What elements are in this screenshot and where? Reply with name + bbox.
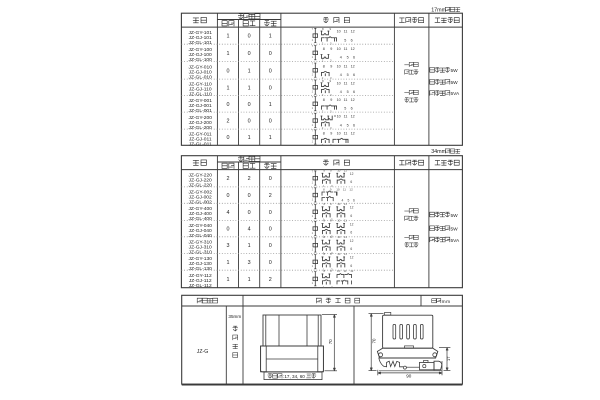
svg-text:12: 12 bbox=[350, 222, 354, 226]
svg-text:5: 5 bbox=[347, 123, 349, 127]
svg-text:3: 3 bbox=[330, 93, 332, 97]
svg-text:7: 7 bbox=[312, 62, 314, 66]
svg-text:1: 1 bbox=[269, 102, 272, 108]
svg-text:2: 2 bbox=[269, 277, 272, 283]
svg-text:1: 1 bbox=[227, 34, 230, 40]
svg-text:12: 12 bbox=[351, 115, 355, 119]
svg-text:5: 5 bbox=[347, 73, 349, 77]
svg-text:6: 6 bbox=[350, 247, 352, 251]
svg-text:11: 11 bbox=[343, 187, 346, 191]
svg-text:1: 1 bbox=[248, 135, 251, 141]
svg-text:JZ-GL-110: JZ-GL-110 bbox=[189, 92, 212, 98]
svg-text:0: 0 bbox=[269, 119, 272, 125]
svg-text:12: 12 bbox=[351, 98, 355, 102]
svg-text:0: 0 bbox=[227, 135, 230, 141]
svg-text:10: 10 bbox=[337, 269, 341, 273]
svg-text:3: 3 bbox=[248, 260, 251, 266]
svg-text:12: 12 bbox=[350, 206, 354, 210]
svg-text:6: 6 bbox=[350, 231, 352, 235]
svg-text:0: 0 bbox=[269, 260, 272, 266]
svg-text:6: 6 bbox=[351, 107, 353, 111]
svg-text:1: 1 bbox=[312, 90, 314, 94]
svg-text:1: 1 bbox=[312, 214, 314, 218]
svg-text:2: 2 bbox=[322, 59, 324, 63]
svg-text:11: 11 bbox=[344, 235, 347, 239]
svg-text:35mm: 35mm bbox=[228, 314, 241, 319]
svg-text:12: 12 bbox=[351, 47, 355, 51]
svg-text:1: 1 bbox=[248, 277, 251, 283]
svg-text:9: 9 bbox=[330, 98, 332, 102]
svg-text:9: 9 bbox=[330, 187, 332, 191]
svg-text:2: 2 bbox=[227, 176, 230, 182]
svg-text:9: 9 bbox=[330, 202, 332, 206]
svg-text:5: 5 bbox=[347, 56, 349, 60]
svg-text:2: 2 bbox=[322, 41, 324, 45]
svg-text:7: 7 bbox=[312, 270, 314, 274]
svg-text:JZ-GL-101: JZ-GL-101 bbox=[189, 40, 213, 46]
svg-text:8: 8 bbox=[323, 47, 325, 51]
svg-text:7: 7 bbox=[312, 79, 314, 83]
svg-text:11: 11 bbox=[344, 252, 347, 256]
svg-text:8: 8 bbox=[323, 131, 325, 135]
svg-text:3: 3 bbox=[330, 41, 332, 45]
svg-text:11: 11 bbox=[344, 219, 347, 223]
svg-text:1: 1 bbox=[227, 51, 230, 57]
svg-text:JZ-GL-220: JZ-GL-220 bbox=[189, 182, 213, 188]
svg-text:70: 70 bbox=[328, 339, 333, 344]
svg-text:7: 7 bbox=[312, 253, 314, 257]
svg-text:12: 12 bbox=[350, 239, 354, 243]
svg-text:9: 9 bbox=[330, 168, 332, 172]
svg-text:12: 12 bbox=[351, 81, 355, 85]
svg-text:12: 12 bbox=[350, 269, 354, 273]
svg-text:4: 4 bbox=[340, 90, 342, 94]
svg-text:0: 0 bbox=[248, 51, 251, 57]
svg-text:10: 10 bbox=[337, 202, 341, 206]
svg-text:1: 1 bbox=[248, 68, 251, 74]
svg-text:10: 10 bbox=[337, 131, 341, 135]
svg-text:12: 12 bbox=[350, 172, 354, 176]
svg-text:1: 1 bbox=[312, 38, 314, 42]
svg-text:6: 6 bbox=[353, 90, 355, 94]
svg-text:0: 0 bbox=[269, 176, 272, 182]
svg-text:0: 0 bbox=[248, 102, 251, 108]
svg-text:1: 1 bbox=[269, 34, 272, 40]
svg-text:11: 11 bbox=[344, 131, 348, 135]
svg-text:2: 2 bbox=[227, 119, 230, 125]
svg-text:11: 11 bbox=[344, 30, 348, 34]
svg-text:0: 0 bbox=[248, 119, 251, 125]
svg-text:12: 12 bbox=[350, 256, 354, 260]
svg-text:5VA: 5VA bbox=[451, 91, 461, 97]
svg-text:10: 10 bbox=[337, 30, 341, 34]
svg-text:11: 11 bbox=[344, 81, 348, 85]
svg-text:4: 4 bbox=[340, 123, 342, 127]
svg-text:90: 90 bbox=[406, 373, 412, 378]
svg-text:0: 0 bbox=[269, 51, 272, 57]
svg-text:0: 0 bbox=[269, 210, 272, 216]
svg-text:8: 8 bbox=[324, 168, 326, 172]
svg-text:0: 0 bbox=[227, 193, 230, 199]
svg-text:7: 7 bbox=[312, 236, 314, 240]
svg-text:11: 11 bbox=[344, 202, 347, 206]
svg-text:JZ-GL-002: JZ-GL-002 bbox=[189, 199, 213, 205]
svg-text:5: 5 bbox=[344, 38, 346, 42]
svg-text:0: 0 bbox=[269, 227, 272, 233]
svg-text:10: 10 bbox=[337, 219, 341, 223]
svg-text:1: 1 bbox=[269, 135, 272, 141]
svg-text:JZ-GL-011: JZ-GL-011 bbox=[189, 141, 212, 147]
svg-text:6: 6 bbox=[353, 198, 355, 202]
svg-text:12: 12 bbox=[351, 30, 355, 34]
svg-text:8: 8 bbox=[322, 79, 324, 83]
svg-text:0: 0 bbox=[269, 68, 272, 74]
svg-text:5VA: 5VA bbox=[451, 238, 461, 244]
svg-text:11: 11 bbox=[344, 168, 347, 172]
svg-text:1: 1 bbox=[227, 277, 230, 283]
svg-text:11: 11 bbox=[344, 115, 348, 119]
svg-text:1: 1 bbox=[312, 55, 314, 59]
svg-text:1: 1 bbox=[312, 281, 314, 285]
svg-text:JZ-G: JZ-G bbox=[197, 349, 209, 355]
svg-text:4: 4 bbox=[340, 73, 342, 77]
svg-text:9: 9 bbox=[330, 47, 332, 51]
svg-text:0: 0 bbox=[269, 85, 272, 91]
svg-text:JZ-GL-130: JZ-GL-130 bbox=[189, 266, 213, 272]
svg-text:11: 11 bbox=[344, 65, 348, 69]
svg-text:0: 0 bbox=[248, 34, 251, 40]
svg-text:1: 1 bbox=[312, 247, 314, 251]
svg-text:7: 7 bbox=[312, 112, 314, 116]
svg-text:12: 12 bbox=[351, 65, 355, 69]
svg-text:1: 1 bbox=[312, 197, 314, 201]
svg-text:1: 1 bbox=[312, 231, 314, 235]
svg-text:7: 7 bbox=[312, 128, 314, 132]
svg-text:9: 9 bbox=[330, 27, 332, 31]
svg-text:6: 6 bbox=[350, 264, 352, 268]
svg-text:10: 10 bbox=[337, 235, 341, 239]
svg-text:11: 11 bbox=[344, 47, 348, 51]
svg-text:1: 1 bbox=[312, 180, 314, 184]
svg-text:0: 0 bbox=[227, 227, 230, 233]
svg-text:6: 6 bbox=[350, 180, 352, 184]
svg-text:1: 1 bbox=[248, 85, 251, 91]
svg-text:JZ-GL-010: JZ-GL-010 bbox=[189, 75, 213, 81]
svg-text:10: 10 bbox=[336, 187, 340, 191]
svg-text:JZ-GL-100: JZ-GL-100 bbox=[189, 57, 213, 63]
svg-text:7: 7 bbox=[312, 203, 314, 207]
svg-text:JZ-GL-001: JZ-GL-001 bbox=[189, 108, 213, 114]
svg-text:7: 7 bbox=[312, 220, 314, 224]
svg-text:1: 1 bbox=[312, 73, 314, 77]
svg-text:5: 5 bbox=[348, 198, 350, 202]
svg-text:0: 0 bbox=[248, 193, 251, 199]
svg-text:8: 8 bbox=[323, 98, 325, 102]
svg-text:10: 10 bbox=[337, 65, 341, 69]
svg-text:6: 6 bbox=[353, 73, 355, 77]
svg-text:3: 3 bbox=[330, 109, 332, 113]
svg-text:0: 0 bbox=[248, 210, 251, 216]
svg-text:3: 3 bbox=[227, 243, 230, 249]
svg-text:0: 0 bbox=[269, 243, 272, 249]
svg-text:1: 1 bbox=[227, 260, 230, 266]
svg-text:1: 1 bbox=[312, 139, 314, 143]
svg-text:4: 4 bbox=[227, 210, 230, 216]
svg-text:17: 17 bbox=[446, 357, 451, 361]
svg-text:2: 2 bbox=[248, 176, 251, 182]
svg-text:6: 6 bbox=[351, 38, 353, 42]
svg-text:1: 1 bbox=[312, 264, 314, 268]
svg-text:10: 10 bbox=[337, 252, 341, 256]
svg-text:8: 8 bbox=[323, 65, 325, 69]
svg-text:2: 2 bbox=[322, 93, 324, 97]
svg-text:4: 4 bbox=[340, 56, 342, 60]
svg-text:70: 70 bbox=[372, 338, 377, 343]
svg-text:JZ-GL-112: JZ-GL-112 bbox=[189, 283, 212, 289]
svg-text:10: 10 bbox=[337, 81, 341, 85]
svg-text:7: 7 bbox=[312, 186, 314, 190]
svg-text:12: 12 bbox=[349, 187, 353, 191]
svg-text:5: 5 bbox=[347, 90, 349, 94]
svg-text:10: 10 bbox=[337, 115, 341, 119]
svg-text:JZ-GL-310: JZ-GL-310 bbox=[189, 249, 213, 255]
svg-text:5: 5 bbox=[344, 107, 346, 111]
svg-text:11: 11 bbox=[344, 269, 347, 273]
svg-text:mm: mm bbox=[442, 300, 451, 305]
svg-text:2: 2 bbox=[322, 126, 324, 130]
svg-text::17, 34, 60: :17, 34, 60 bbox=[283, 374, 305, 379]
svg-text:JZ-GL-040: JZ-GL-040 bbox=[189, 233, 213, 239]
svg-text:6: 6 bbox=[353, 56, 355, 60]
svg-text:8: 8 bbox=[324, 269, 326, 273]
svg-text:10: 10 bbox=[337, 168, 341, 172]
svg-text:3: 3 bbox=[330, 59, 332, 63]
svg-text:1: 1 bbox=[248, 243, 251, 249]
svg-text:0: 0 bbox=[227, 102, 230, 108]
svg-text:1: 1 bbox=[227, 85, 230, 91]
svg-text:8: 8 bbox=[322, 27, 324, 31]
svg-text:5W: 5W bbox=[451, 213, 459, 219]
svg-text:10: 10 bbox=[337, 98, 341, 102]
svg-text:8: 8 bbox=[323, 187, 325, 191]
svg-text:10: 10 bbox=[337, 47, 341, 51]
svg-text:JZ-GL-200: JZ-GL-200 bbox=[189, 125, 213, 131]
svg-text:2: 2 bbox=[269, 193, 272, 199]
svg-text:JZ-GL-400: JZ-GL-400 bbox=[189, 216, 213, 222]
svg-text:6: 6 bbox=[350, 214, 352, 218]
svg-text:5W: 5W bbox=[451, 68, 459, 74]
svg-text:4: 4 bbox=[248, 227, 251, 233]
svg-text:34mm: 34mm bbox=[431, 149, 446, 155]
svg-text:12: 12 bbox=[351, 131, 355, 135]
svg-text:8: 8 bbox=[324, 202, 326, 206]
svg-text:9: 9 bbox=[330, 65, 332, 69]
svg-text:2: 2 bbox=[322, 109, 324, 113]
svg-text:3: 3 bbox=[330, 126, 332, 130]
svg-text:5W: 5W bbox=[451, 227, 459, 233]
svg-text:7: 7 bbox=[312, 44, 314, 48]
svg-text:7: 7 bbox=[312, 95, 314, 99]
svg-text:5W: 5W bbox=[451, 80, 459, 86]
svg-text:1: 1 bbox=[312, 123, 314, 127]
svg-text:0: 0 bbox=[227, 68, 230, 74]
svg-text:6: 6 bbox=[353, 123, 355, 127]
svg-text:11: 11 bbox=[344, 98, 348, 102]
svg-text:1: 1 bbox=[312, 106, 314, 110]
svg-text:9: 9 bbox=[330, 131, 332, 135]
